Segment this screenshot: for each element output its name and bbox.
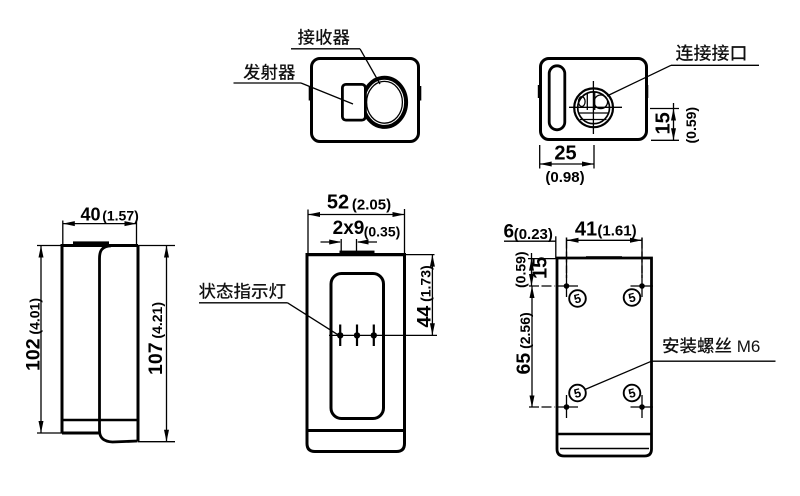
svg-text:25: 25 (554, 143, 576, 165)
svg-text:107 (4.21): 107 (4.21) (145, 302, 167, 375)
svg-text:41: 41 (575, 218, 597, 240)
svg-text:2x9: 2x9 (333, 218, 365, 239)
svg-text:(1.61): (1.61) (597, 223, 636, 240)
svg-text:(0.59): (0.59) (683, 107, 699, 144)
svg-text:44 (1.73): 44 (1.73) (413, 265, 435, 327)
svg-text:40: 40 (80, 204, 100, 224)
svg-text:(0.59): (0.59) (513, 251, 529, 288)
svg-text:(0.35): (0.35) (364, 224, 401, 240)
svg-text:52: 52 (327, 192, 349, 214)
svg-text:(0.23): (0.23) (514, 226, 553, 243)
svg-text:15: 15 (653, 112, 675, 134)
svg-text:65 (2.56): 65 (2.56) (513, 312, 535, 374)
svg-text:(0.98): (0.98) (545, 169, 584, 186)
svg-text:6: 6 (504, 222, 515, 243)
svg-text:15: 15 (530, 257, 552, 279)
svg-text:102 (4.01): 102 (4.01) (22, 298, 44, 371)
svg-text:(2.05): (2.05) (352, 197, 391, 214)
svg-text:M6: M6 (732, 337, 760, 356)
svg-text:(1.57): (1.57) (102, 208, 139, 224)
